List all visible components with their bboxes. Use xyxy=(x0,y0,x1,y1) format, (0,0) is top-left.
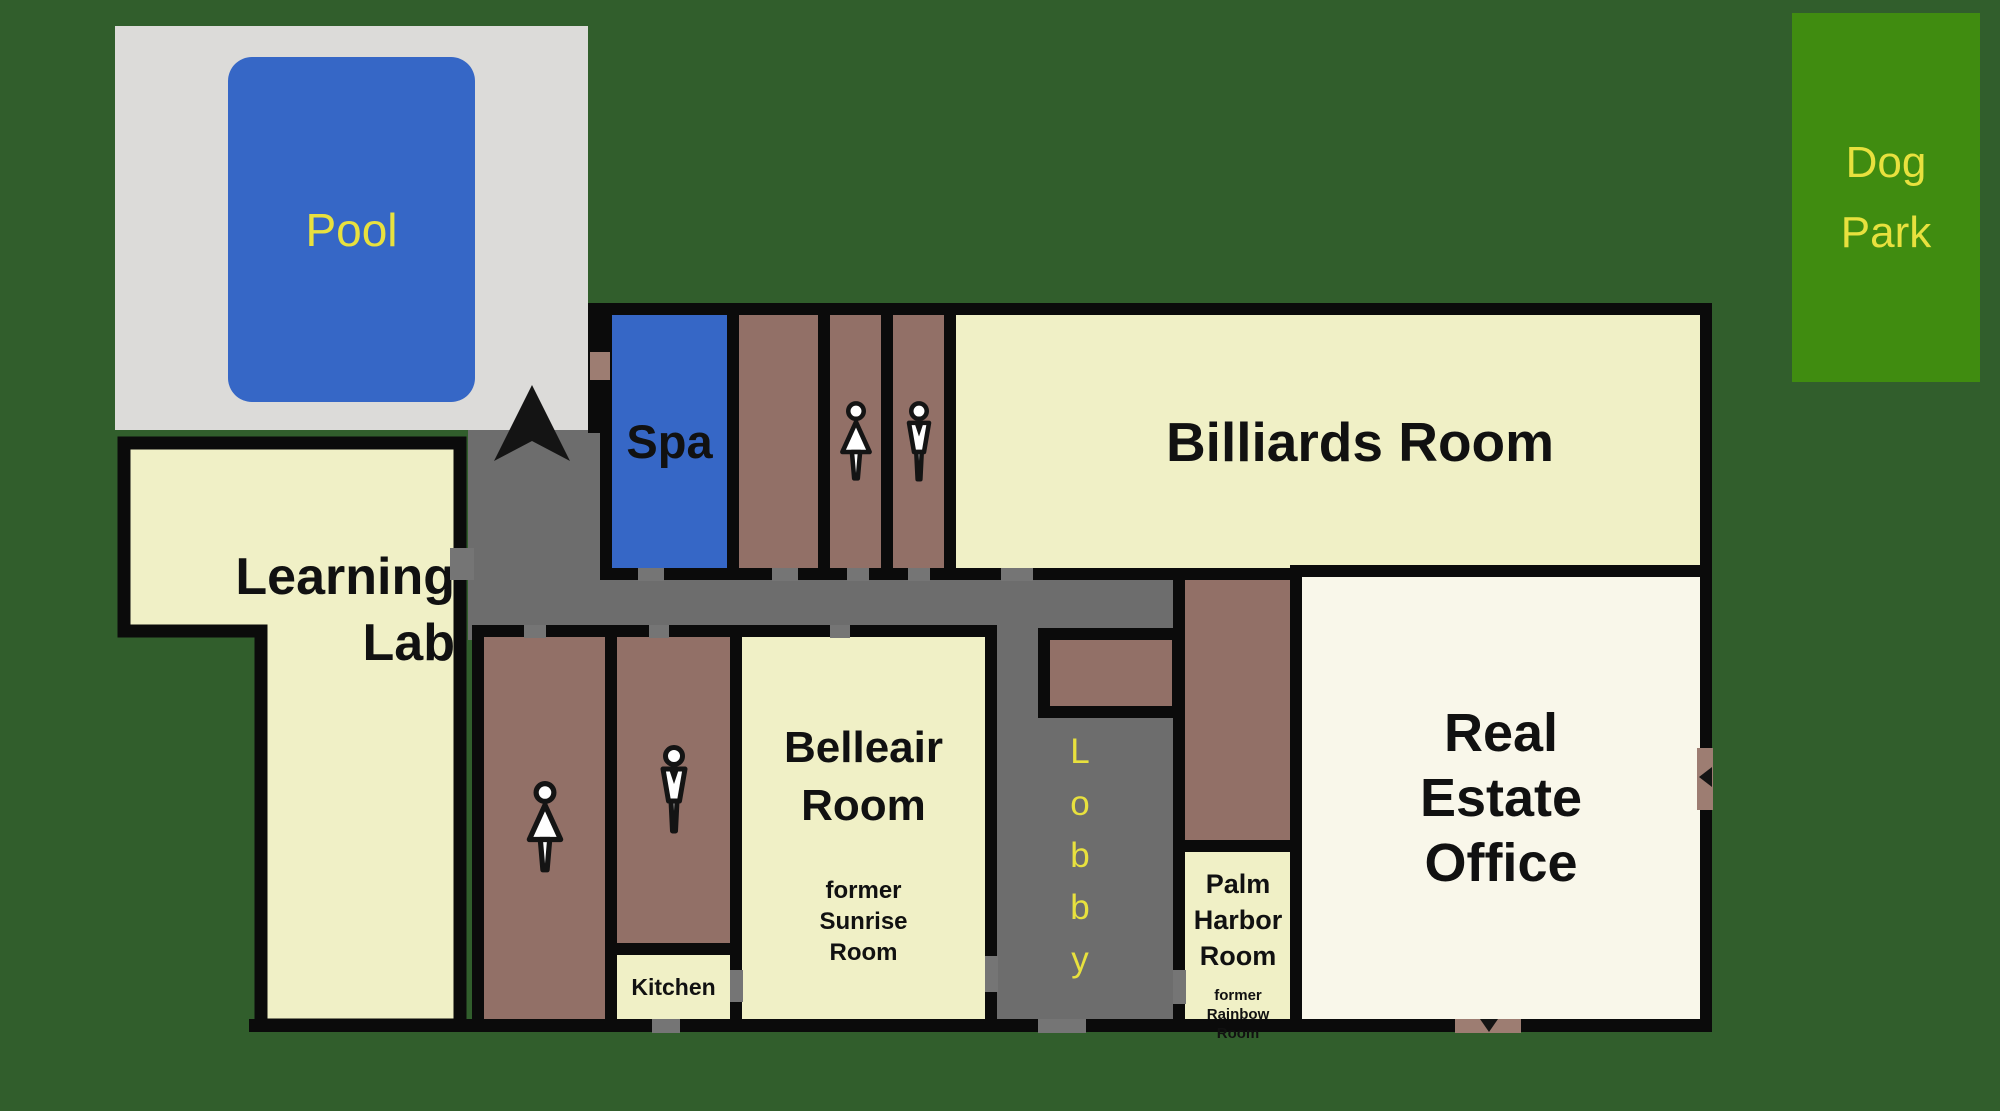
male-restroom-icon xyxy=(899,399,939,485)
spa-room: Spa xyxy=(600,303,739,580)
doorway xyxy=(985,956,998,992)
north-arrow-icon xyxy=(494,385,570,461)
doorway xyxy=(1001,568,1033,581)
belleair-former-name: former Sunrise Room xyxy=(819,875,907,968)
kitchen: Kitchen xyxy=(605,943,742,1031)
palm-harbor-former-name: former Rainbow Room xyxy=(1207,986,1270,1043)
billiards-label: Billiards Room xyxy=(1102,410,1554,474)
doorway xyxy=(450,548,474,580)
doorway xyxy=(524,625,546,638)
doorway xyxy=(649,625,669,638)
doorway xyxy=(847,568,869,581)
doorway xyxy=(652,1019,680,1033)
doorway xyxy=(730,970,743,1002)
female-restroom-icon xyxy=(522,780,568,876)
unlabeled-room-upper xyxy=(727,303,830,580)
floor-plan: Pool Dog Park Learning Lab Spa Billiards… xyxy=(0,0,2000,1111)
palm-harbor-label: Palm Harbor Room xyxy=(1194,866,1283,974)
doorway xyxy=(772,568,798,581)
exterior-door xyxy=(590,352,610,380)
billiards-room: Billiards Room xyxy=(944,303,1712,580)
belleair-label: Belleair Room xyxy=(784,719,943,835)
learning-lab-room xyxy=(124,443,460,1025)
mens-restroom-lower xyxy=(605,625,742,955)
womens-restroom-lower xyxy=(472,625,617,1031)
belleair-room: Belleair Room former Sunrise Room xyxy=(730,625,997,1031)
doorway xyxy=(1173,970,1186,1004)
doorway xyxy=(908,568,930,581)
entry-arrow-icon xyxy=(1480,1019,1498,1032)
doorway xyxy=(830,625,850,638)
lobby-label: L o b b y xyxy=(1048,726,1112,986)
doorway xyxy=(1038,1019,1086,1033)
real-estate-label: Real Estate Office xyxy=(1420,701,1582,896)
doorway xyxy=(638,568,664,581)
palm-harbor-room: Palm Harbor Room former Rainbow Room xyxy=(1173,840,1303,1031)
learning-lab-label: Learning Lab xyxy=(135,544,455,676)
unlabeled-room-lower xyxy=(1173,568,1303,852)
entry-arrow-icon xyxy=(1699,767,1712,787)
reception-desk xyxy=(1038,628,1184,718)
male-restroom-icon xyxy=(652,744,696,836)
kitchen-label: Kitchen xyxy=(631,974,715,1001)
spa-label: Spa xyxy=(626,414,712,469)
female-restroom-icon xyxy=(836,399,876,485)
real-estate-office: Real Estate Office xyxy=(1290,565,1712,1031)
